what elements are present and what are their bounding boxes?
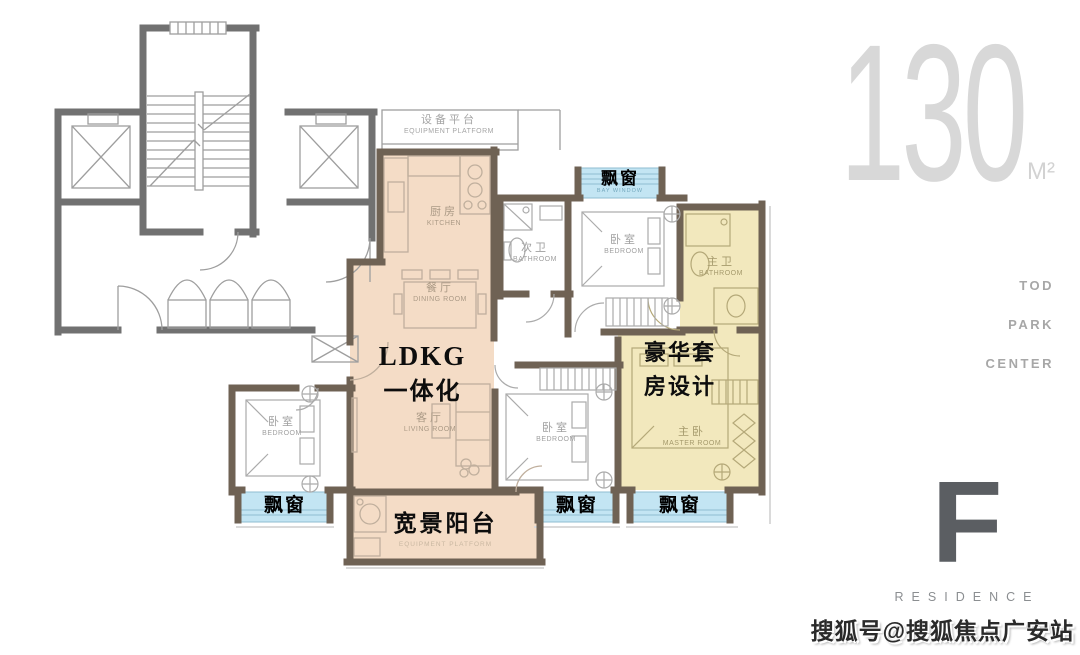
living-zh: 客厅: [390, 412, 470, 425]
kitchen-en: KITCHEN: [404, 220, 484, 228]
bedroom-left-en: BEDROOM: [240, 430, 324, 438]
label-bedroom-top: 卧室 BEDROOM: [582, 234, 666, 256]
bedroom-top-zh: 卧室: [582, 234, 666, 247]
floorplan-page: 设备平台 EQUIPMENT PLATFORM 厨房 KITCHEN 餐厅 DI…: [0, 0, 1080, 655]
tod-line-2: PARK: [986, 305, 1054, 344]
bay-label-left: 飘窗: [238, 496, 332, 516]
label-bedroom-left: 卧室 BEDROOM: [240, 416, 324, 438]
elevator-right-icon: [300, 114, 358, 188]
dining-en: DINING ROOM: [400, 296, 480, 304]
annotation-balcony: 宽景阳台: [368, 508, 523, 540]
bay-right-zh: 飘窗: [659, 495, 701, 516]
area-number: 130: [840, 28, 1024, 200]
residence-letter: F: [883, 464, 1051, 580]
master-bathroom-zh: 主卫: [688, 256, 754, 269]
watermark: 搜狐号@搜狐焦点广安站: [811, 612, 1074, 646]
living-en: LIVING ROOM: [390, 426, 470, 434]
area-figure: 130 M²: [795, 28, 1055, 200]
bay-top-zh: 飘窗: [601, 169, 639, 188]
label-bedroom-middle: 卧室 BEDROOM: [514, 422, 598, 444]
label-master-bathroom: 主卫 BATHROOM: [688, 256, 754, 278]
lobby-closets: [168, 280, 290, 328]
bedroom-middle-en: BEDROOM: [514, 436, 598, 444]
bedroom-top-furniture: [582, 206, 680, 326]
ldkg-line2: 一体化: [355, 376, 490, 410]
stair-divider: [195, 92, 203, 190]
residence-word: RESIDENCE: [883, 590, 1051, 604]
bedroom-left-furniture: [246, 386, 320, 492]
balcony-sub-label: EQUIPMENT PLATFORM: [368, 541, 523, 548]
bedroom-middle-zh: 卧室: [514, 422, 598, 435]
area-unit: M²: [1027, 158, 1055, 186]
second-bathroom-en: BATHROOM: [500, 256, 570, 264]
bay-label-top: 飘窗 BAY WINDOW: [578, 170, 662, 195]
lobby-door-arc-left: [118, 286, 162, 330]
balcony-label: 宽景阳台: [368, 508, 523, 540]
label-equipment-platform: 设备平台 EQUIPMENT PLATFORM: [378, 114, 520, 136]
bay-left-zh: 飘窗: [264, 495, 306, 516]
master-bedroom-zh: 主卧: [650, 426, 734, 439]
bedroom-top-en: BEDROOM: [582, 248, 666, 256]
ldkg-line1: LDKG: [355, 338, 490, 376]
elevator-left-icon: [72, 114, 130, 188]
label-kitchen: 厨房 KITCHEN: [404, 206, 484, 228]
label-second-bathroom: 次卫 BATHROOM: [500, 242, 570, 264]
dining-zh: 餐厅: [400, 282, 480, 295]
master-bedroom-en: MASTER ROOM: [650, 440, 734, 448]
bay-label-middle: 飘窗: [536, 496, 618, 516]
label-living-room: 客厅 LIVING ROOM: [390, 412, 470, 434]
residence-block: F RESIDENCE: [883, 464, 1051, 604]
common-core: [58, 22, 374, 362]
suite-line1: 豪华套: [616, 336, 744, 370]
bedroom-left-zh: 卧室: [240, 416, 324, 429]
common-walls: [58, 28, 374, 332]
annotation-luxury-suite: 豪华套 房设计: [616, 336, 744, 404]
annotation-ldkg: LDKG 一体化: [355, 338, 490, 409]
equipment-platform-en: EQUIPMENT PLATFORM: [378, 128, 520, 136]
tod-line-1: TOD: [986, 266, 1054, 305]
bay-top-en: BAY WINDOW: [578, 189, 662, 195]
bay-middle-zh: 飘窗: [556, 495, 598, 516]
stair-door-arc: [200, 232, 238, 270]
suite-line2: 房设计: [616, 370, 744, 404]
second-bathroom-zh: 次卫: [500, 242, 570, 255]
bay-label-right: 飘窗: [628, 496, 732, 516]
master-bathroom-en: BATHROOM: [688, 270, 754, 278]
tod-line-3: CENTER: [986, 344, 1054, 383]
equipment-platform-zh: 设备平台: [378, 114, 520, 127]
label-master-bedroom: 主卧 MASTER ROOM: [650, 426, 734, 448]
tod-park-center: TOD PARK CENTER: [986, 266, 1054, 383]
kitchen-zh: 厨房: [404, 206, 484, 219]
label-dining-room: 餐厅 DINING ROOM: [400, 282, 480, 304]
